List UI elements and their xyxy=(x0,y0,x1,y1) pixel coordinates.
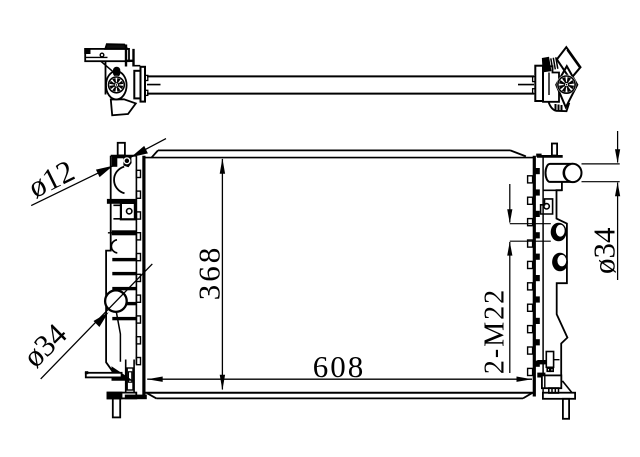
svg-text:608: 608 xyxy=(313,349,366,384)
svg-text:368: 368 xyxy=(192,245,227,301)
svg-text:2-M22: 2-M22 xyxy=(479,288,510,374)
svg-text:ø34: ø34 xyxy=(586,227,621,274)
